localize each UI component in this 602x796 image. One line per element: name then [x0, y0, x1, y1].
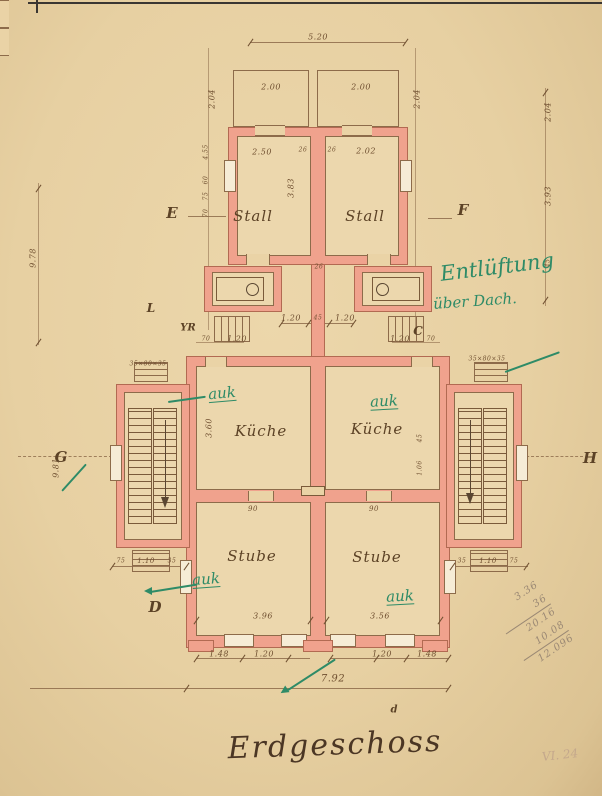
- dim-tick: [446, 655, 452, 663]
- dim-tick: [306, 320, 312, 328]
- dim-tick: [524, 563, 530, 571]
- dim-tick: [194, 617, 200, 625]
- dim-tick: [110, 563, 116, 571]
- dim-tick: [328, 655, 334, 663]
- dim-tick: [446, 685, 452, 693]
- dim-tick: [324, 617, 330, 625]
- dim-tick: [327, 320, 333, 328]
- ticks-layer: [0, 0, 602, 796]
- dim-tick: [184, 563, 190, 571]
- dim-tick: [450, 563, 456, 571]
- dim-tick: [308, 617, 314, 625]
- dim-tick: [404, 655, 410, 663]
- dim-tick: [184, 685, 190, 693]
- dim-tick: [351, 320, 357, 328]
- dim-tick: [248, 39, 254, 47]
- dim-tick: [36, 339, 42, 347]
- dim-tick: [286, 655, 292, 663]
- dim-tick: [279, 320, 285, 328]
- dim-tick: [240, 655, 246, 663]
- dim-tick: [374, 655, 380, 663]
- dim-tick: [543, 297, 549, 305]
- floorplan-sheet: 3.363620.1610.0812.096 Erdgeschoss VI. 2…: [0, 0, 602, 796]
- dim-tick: [543, 89, 549, 97]
- dim-tick: [403, 39, 409, 47]
- dim-tick: [194, 655, 200, 663]
- dim-tick: [36, 185, 42, 193]
- dim-tick: [438, 617, 444, 625]
